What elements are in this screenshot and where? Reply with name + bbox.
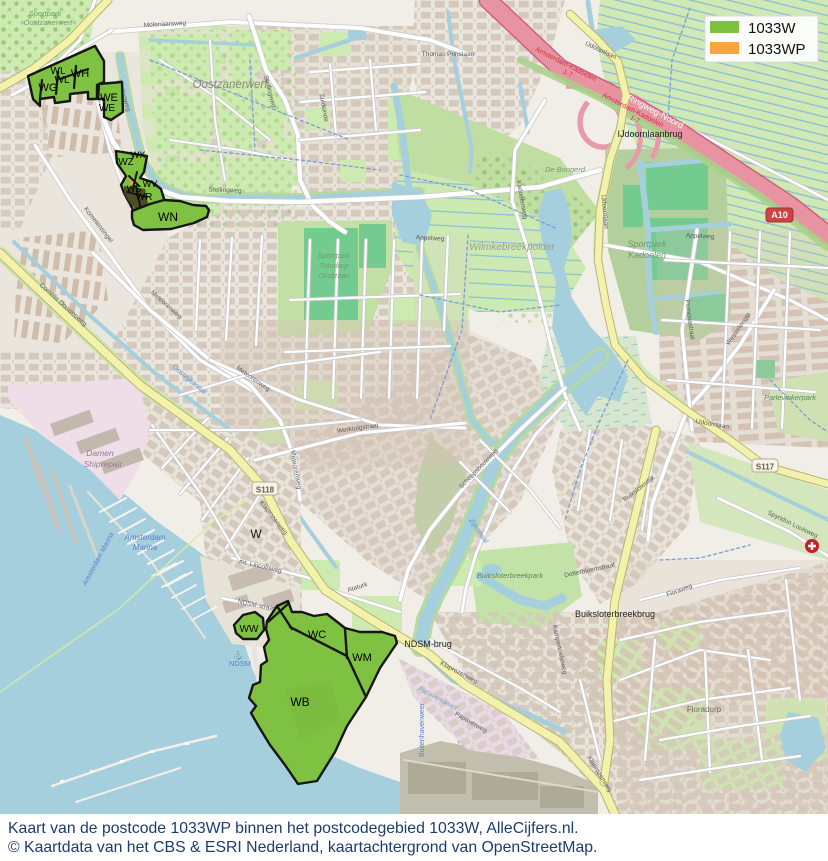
svg-text:Oostzaan: Oostzaan <box>318 271 350 280</box>
svg-text:S117: S117 <box>756 463 775 472</box>
svg-text:Stellingweg: Stellingweg <box>208 186 242 194</box>
svg-text:NDSM-brug: NDSM-brug <box>404 639 452 649</box>
svg-text:Parlevinkerpark: Parlevinkerpark <box>764 393 817 402</box>
svg-text:WB: WB <box>290 695 309 709</box>
svg-text:WC: WC <box>308 629 326 641</box>
svg-text:1033WP: 1033WP <box>748 41 806 58</box>
svg-text:WL: WL <box>51 66 66 77</box>
svg-text:IJdoornlaanbrug: IJdoornlaanbrug <box>617 129 682 139</box>
svg-text:Damen: Damen <box>86 448 114 458</box>
svg-text:Sportpark: Sportpark <box>627 239 667 249</box>
svg-text:Oostzanerwerf: Oostzanerwerf <box>24 18 74 27</box>
svg-text:NDSM: NDSM <box>229 659 251 668</box>
svg-text:Buiksloterbreekbrug: Buiksloterbreekbrug <box>575 609 655 619</box>
svg-text:De Bongerd: De Bongerd <box>545 165 586 174</box>
svg-text:Marina: Marina <box>133 543 158 552</box>
svg-text:WW: WW <box>240 624 259 635</box>
svg-text:Thomas Prinslaan: Thomas Prinslaan <box>422 51 475 58</box>
svg-text:WH: WH <box>71 68 89 80</box>
svg-text:Tuindorp: Tuindorp <box>319 261 348 270</box>
svg-text:WR: WR <box>136 192 153 203</box>
svg-text:1033W: 1033W <box>748 20 796 37</box>
svg-text:Shiprepair: Shiprepair <box>84 459 124 469</box>
svg-text:WE: WE <box>99 103 115 114</box>
svg-text:Wilmkebreekpolder: Wilmkebreekpolder <box>469 242 555 253</box>
svg-text:WV: WV <box>143 179 158 189</box>
svg-text:A10: A10 <box>771 210 788 220</box>
svg-text:Oostzanerwerf: Oostzanerwerf <box>193 79 270 91</box>
svg-text:W: W <box>250 527 262 541</box>
svg-text:Floradorp: Floradorp <box>687 705 722 714</box>
svg-text:© Kaartdata van het CBS & ESRI: © Kaartdata van het CBS & ESRI Nederland… <box>8 839 597 856</box>
svg-text:Sportpark: Sportpark <box>29 9 63 18</box>
svg-text:S118: S118 <box>256 486 275 495</box>
svg-text:Buitenhavenweer: Buitenhavenweer <box>419 702 426 757</box>
svg-text:Buiksloterbreekpark: Buiksloterbreekpark <box>477 571 545 580</box>
svg-text:Amsterdam: Amsterdam <box>124 533 166 542</box>
svg-text:WN: WN <box>158 210 178 224</box>
svg-text:WX: WX <box>131 150 146 160</box>
svg-text:Kaart van de postcode 1033WP b: Kaart van de postcode 1033WP binnen het … <box>8 820 579 837</box>
svg-text:Sportpark: Sportpark <box>318 251 352 260</box>
svg-text:WM: WM <box>352 652 372 664</box>
svg-text:⚓: ⚓ <box>233 650 243 660</box>
svg-text:Kadoelen: Kadoelen <box>628 250 666 260</box>
